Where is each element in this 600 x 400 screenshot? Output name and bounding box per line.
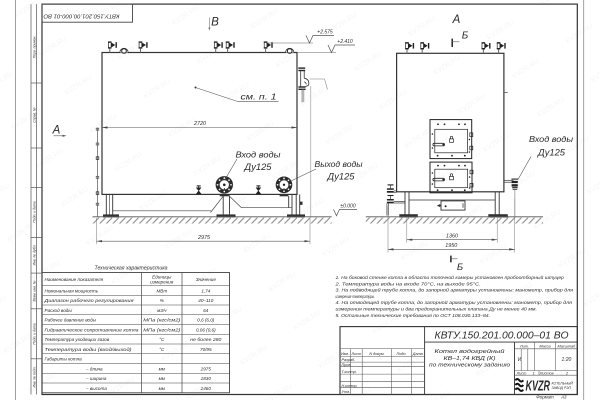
svg-text:Значение: Значение <box>196 277 217 282</box>
svg-text:Б: Б <box>457 262 463 273</box>
svg-text:1,74: 1,74 <box>201 288 210 293</box>
svg-text:2460: 2460 <box>200 386 212 391</box>
svg-text:4. На отводящей трубе котла,: 4. На отводящей трубе котла, до запорной… <box>336 299 573 305</box>
svg-text:70/95: 70/95 <box>200 347 212 352</box>
svg-text:Подп. и дата: Подп. и дата <box>33 201 37 222</box>
svg-text:Масштаб: Масштаб <box>558 345 577 349</box>
svg-text:измерения: измерения <box>150 280 174 285</box>
svg-text:1830: 1830 <box>201 376 212 381</box>
svg-text:Разраб.: Разраб. <box>342 358 356 362</box>
svg-text:%: % <box>160 298 164 303</box>
svg-text:Дата: Дата <box>412 352 423 356</box>
svg-text:Листов: Листов <box>539 371 554 375</box>
svg-text:+2.575: +2.575 <box>317 30 333 36</box>
svg-text:Гидравлическое сопротивление к: Гидравлическое сопротивление котла <box>45 327 139 332</box>
svg-text:Перв. примен.: Перв. примен. <box>33 36 37 59</box>
svg-text:40–110: 40–110 <box>198 298 213 303</box>
svg-text:Температура воды (вход/выход): Температура воды (вход/выход) <box>45 347 133 352</box>
svg-text:Техническая характеристика: Техническая характеристика <box>95 265 168 271</box>
svg-text:2975: 2975 <box>200 366 212 371</box>
svg-text:Пров.: Пров. <box>342 363 352 367</box>
svg-text:2975: 2975 <box>197 235 211 241</box>
svg-text:по техническому заданию: по техническому заданию <box>429 363 510 369</box>
svg-text:0,6 (6,0): 0,6 (6,0) <box>197 318 215 323</box>
svg-text:И: И <box>518 357 522 363</box>
svg-text:мм: мм <box>159 386 166 391</box>
svg-text:ЗАВОД РЭП: ЗАВОД РЭП <box>552 386 572 390</box>
svg-text:Подп. и дата: Подп. и дата <box>33 323 37 344</box>
svg-text:Инв. № подл.: Инв. № подл. <box>33 366 37 387</box>
svg-text:Вход воды: Вход воды <box>236 151 281 160</box>
svg-text:Лит.: Лит. <box>519 345 529 349</box>
svg-text:Наименование показателя: Наименование показателя <box>45 277 104 282</box>
svg-text:Ду125: Ду125 <box>326 171 355 181</box>
svg-text:Выход воды: Выход воды <box>315 160 363 169</box>
svg-text:А3: А3 <box>560 395 567 400</box>
svg-text:1950: 1950 <box>445 243 457 249</box>
svg-text:Температура уходящих газов: Температура уходящих газов <box>45 337 110 342</box>
svg-text:1360: 1360 <box>446 233 458 239</box>
svg-text:Вход воды: Вход воды <box>529 135 573 144</box>
svg-text:Взам. инв. №: Взам. инв. № <box>33 280 37 301</box>
svg-text:Рабочее давление воды: Рабочее давление воды <box>45 318 97 323</box>
svg-text:±0.000: ±0.000 <box>340 203 355 209</box>
svg-text:°С: °С <box>159 347 165 352</box>
svg-text:°С: °С <box>159 337 165 342</box>
svg-text:Номинальная мощность: Номинальная мощность <box>45 288 99 293</box>
svg-text:Изм.: Изм. <box>341 352 349 356</box>
svg-text:– высота: – высота <box>85 386 107 391</box>
svg-text:2720: 2720 <box>193 121 206 127</box>
svg-text:А: А <box>452 14 461 26</box>
svg-text:Котел водогрейный: Котел водогрейный <box>435 348 505 355</box>
svg-text:не более 280: не более 280 <box>190 337 221 342</box>
svg-text:Лист: Лист <box>516 371 527 375</box>
svg-text:А: А <box>52 125 61 137</box>
svg-text:МПа (кгс/см2): МПа (кгс/см2) <box>143 318 181 323</box>
svg-text:измерения температуры и два пр: измерения температуры и два предохраните… <box>336 307 538 312</box>
svg-text:КОТЕЛЬНЫЙ: КОТЕЛЬНЫЙ <box>552 382 574 386</box>
svg-text:см. п. 1: см. п. 1 <box>241 93 277 102</box>
svg-text:2. Температура воды на входе: 2. Температура воды на входе 70°С, на вы… <box>334 281 481 286</box>
svg-text:Н.контр.: Н.контр. <box>342 384 358 388</box>
svg-text:мм: мм <box>159 376 166 381</box>
svg-text:1:20: 1:20 <box>562 357 572 363</box>
svg-text:МПа (кгс/см2): МПа (кгс/см2) <box>143 327 181 332</box>
svg-text:+2.410: +2.410 <box>337 39 353 45</box>
svg-text:МВт: МВт <box>156 288 167 293</box>
svg-text:– длина: – длина <box>85 366 103 371</box>
svg-text:измерения температуры.: измерения температуры. <box>336 294 376 299</box>
svg-text:Подп.: Подп. <box>396 352 406 356</box>
svg-text:0,06 (0,6): 0,06 (0,6) <box>196 327 216 332</box>
svg-text:Справ. №: Справ. № <box>33 107 37 123</box>
svg-text:Лист: Лист <box>351 352 362 356</box>
svg-text:5. Остальные технические треб: 5. Остальные технические требования по О… <box>336 313 491 318</box>
svg-text:Ду125: Ду125 <box>243 162 272 172</box>
svg-text:м3/ч: м3/ч <box>157 308 167 313</box>
svg-text:Диапазон рабочего регулировани: Диапазон рабочего регулирования <box>43 298 134 303</box>
svg-text:Ду125: Ду125 <box>537 148 566 158</box>
svg-text:KVZR: KVZR <box>526 378 551 395</box>
svg-text:N докум.: N докум. <box>369 352 384 356</box>
svg-text:Масса: Масса <box>539 345 550 349</box>
svg-text:Инв. № дубл.: Инв. № дубл. <box>33 245 37 266</box>
svg-text:1. На боковой стенке котла в: 1. На боковой стенке котла в области топ… <box>336 274 565 280</box>
svg-text:КВ–1,74 КВД (К): КВ–1,74 КВД (К) <box>444 356 496 362</box>
svg-text:мм: мм <box>159 366 166 371</box>
svg-text:1: 1 <box>533 371 535 375</box>
svg-text:64: 64 <box>203 308 209 313</box>
svg-text:Б: Б <box>462 30 469 41</box>
svg-text:Т.контр.: Т.контр. <box>342 370 357 374</box>
svg-text:Утв.: Утв. <box>342 390 351 394</box>
svg-text:Формат: Формат <box>536 395 554 400</box>
svg-text:КВТУ.150.201.00.000–01 ВО: КВТУ.150.201.00.000–01 ВО <box>435 331 569 342</box>
svg-text:Расход воды: Расход воды <box>45 308 73 313</box>
svg-text:3. На подводящей трубе котла,: 3. На подводящей трубе котла, до запорно… <box>336 287 574 293</box>
svg-text:Габариты котла: Габариты котла <box>45 357 83 362</box>
svg-text:КВТУ.150.201.00.000-01 ВО: КВТУ.150.201.00.000-01 ВО <box>43 13 120 19</box>
svg-text:В: В <box>211 16 219 28</box>
svg-text:– ширина: – ширина <box>85 376 107 381</box>
